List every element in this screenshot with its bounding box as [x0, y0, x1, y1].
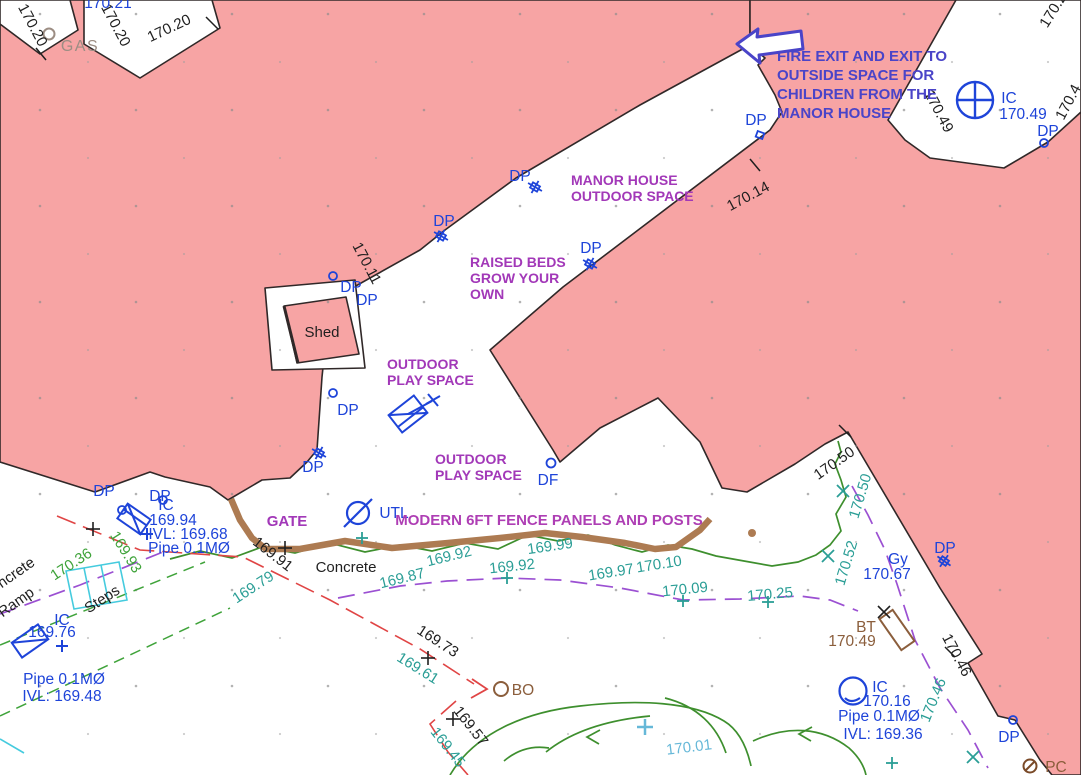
bt-level: 170.49: [828, 633, 875, 650]
concrete-label: Concrete: [316, 559, 377, 576]
survey-drawing: 170.20 170.20 170.20 170.11 170.14 170.4…: [0, 0, 1081, 775]
play-space-annotation: PLAY SPACE: [435, 467, 522, 483]
dp-label: DP: [1037, 123, 1059, 140]
ic-label: IC: [1001, 90, 1017, 107]
pc-label: PC: [1045, 759, 1067, 775]
raised-beds-annotation: RAISED BEDS: [470, 254, 566, 270]
gy-level: 170.67: [863, 566, 910, 583]
df-label: DF: [538, 472, 559, 489]
fire-exit-annotation: MANOR HOUSE: [777, 105, 891, 122]
dp-label: DP: [93, 483, 115, 500]
raised-beds-annotation: OWN: [470, 286, 504, 302]
site-survey-plan: 170.20 170.20 170.20 170.11 170.14 170.4…: [0, 0, 1081, 775]
dp-label: DP: [433, 213, 455, 230]
dp-label: DP: [580, 240, 602, 257]
ic-level: 169.76: [28, 624, 75, 641]
fence-annotation: MODERN 6FT FENCE PANELS AND POSTS: [395, 512, 703, 529]
raised-beds-annotation: GROW YOUR: [470, 270, 559, 286]
bo-label: BO: [512, 682, 534, 699]
dp-label: DP: [302, 459, 324, 476]
ic-level: 170.49: [999, 106, 1046, 123]
manor-house-annotation: MANOR HOUSE: [571, 172, 678, 188]
dp-label: DP: [509, 168, 531, 185]
fire-exit-annotation: FIRE EXIT AND EXIT TO: [777, 48, 947, 65]
manor-house-annotation: OUTDOOR SPACE: [571, 188, 694, 204]
fence-post-dot: [748, 529, 756, 537]
ic-pipe: Pipe 0.1MØ: [838, 708, 920, 725]
play-space-annotation: OUTDOOR: [435, 451, 507, 467]
gate-annotation: GATE: [267, 513, 308, 530]
play-space-annotation: PLAY SPACE: [387, 372, 474, 388]
ic-invert: IVL: 169.36: [843, 726, 922, 743]
dp-label: DP: [998, 729, 1020, 746]
gas-label: GAS: [61, 38, 99, 55]
grid-dots: [0, 0, 1081, 775]
play-space-annotation: OUTDOOR: [387, 356, 459, 372]
shed-label: Shed: [304, 324, 339, 341]
ic-pipe: Pipe 0.1MØ: [148, 540, 230, 557]
dp-label: DP: [745, 112, 767, 129]
fire-exit-annotation: OUTSIDE SPACE FOR: [777, 67, 934, 84]
dp-label: DP: [934, 540, 956, 557]
pipe-label: Pipe 0.1MØ: [23, 671, 105, 688]
dp-label: DP: [356, 292, 378, 309]
pipe-invert: IVL: 169.48: [22, 688, 101, 705]
dp-label: DP: [337, 402, 359, 419]
fire-exit-annotation: CHILDREN FROM THE: [777, 86, 937, 103]
ic-manhole-icon-topright: [957, 82, 993, 118]
level-label-partial: 170.21: [84, 0, 131, 12]
